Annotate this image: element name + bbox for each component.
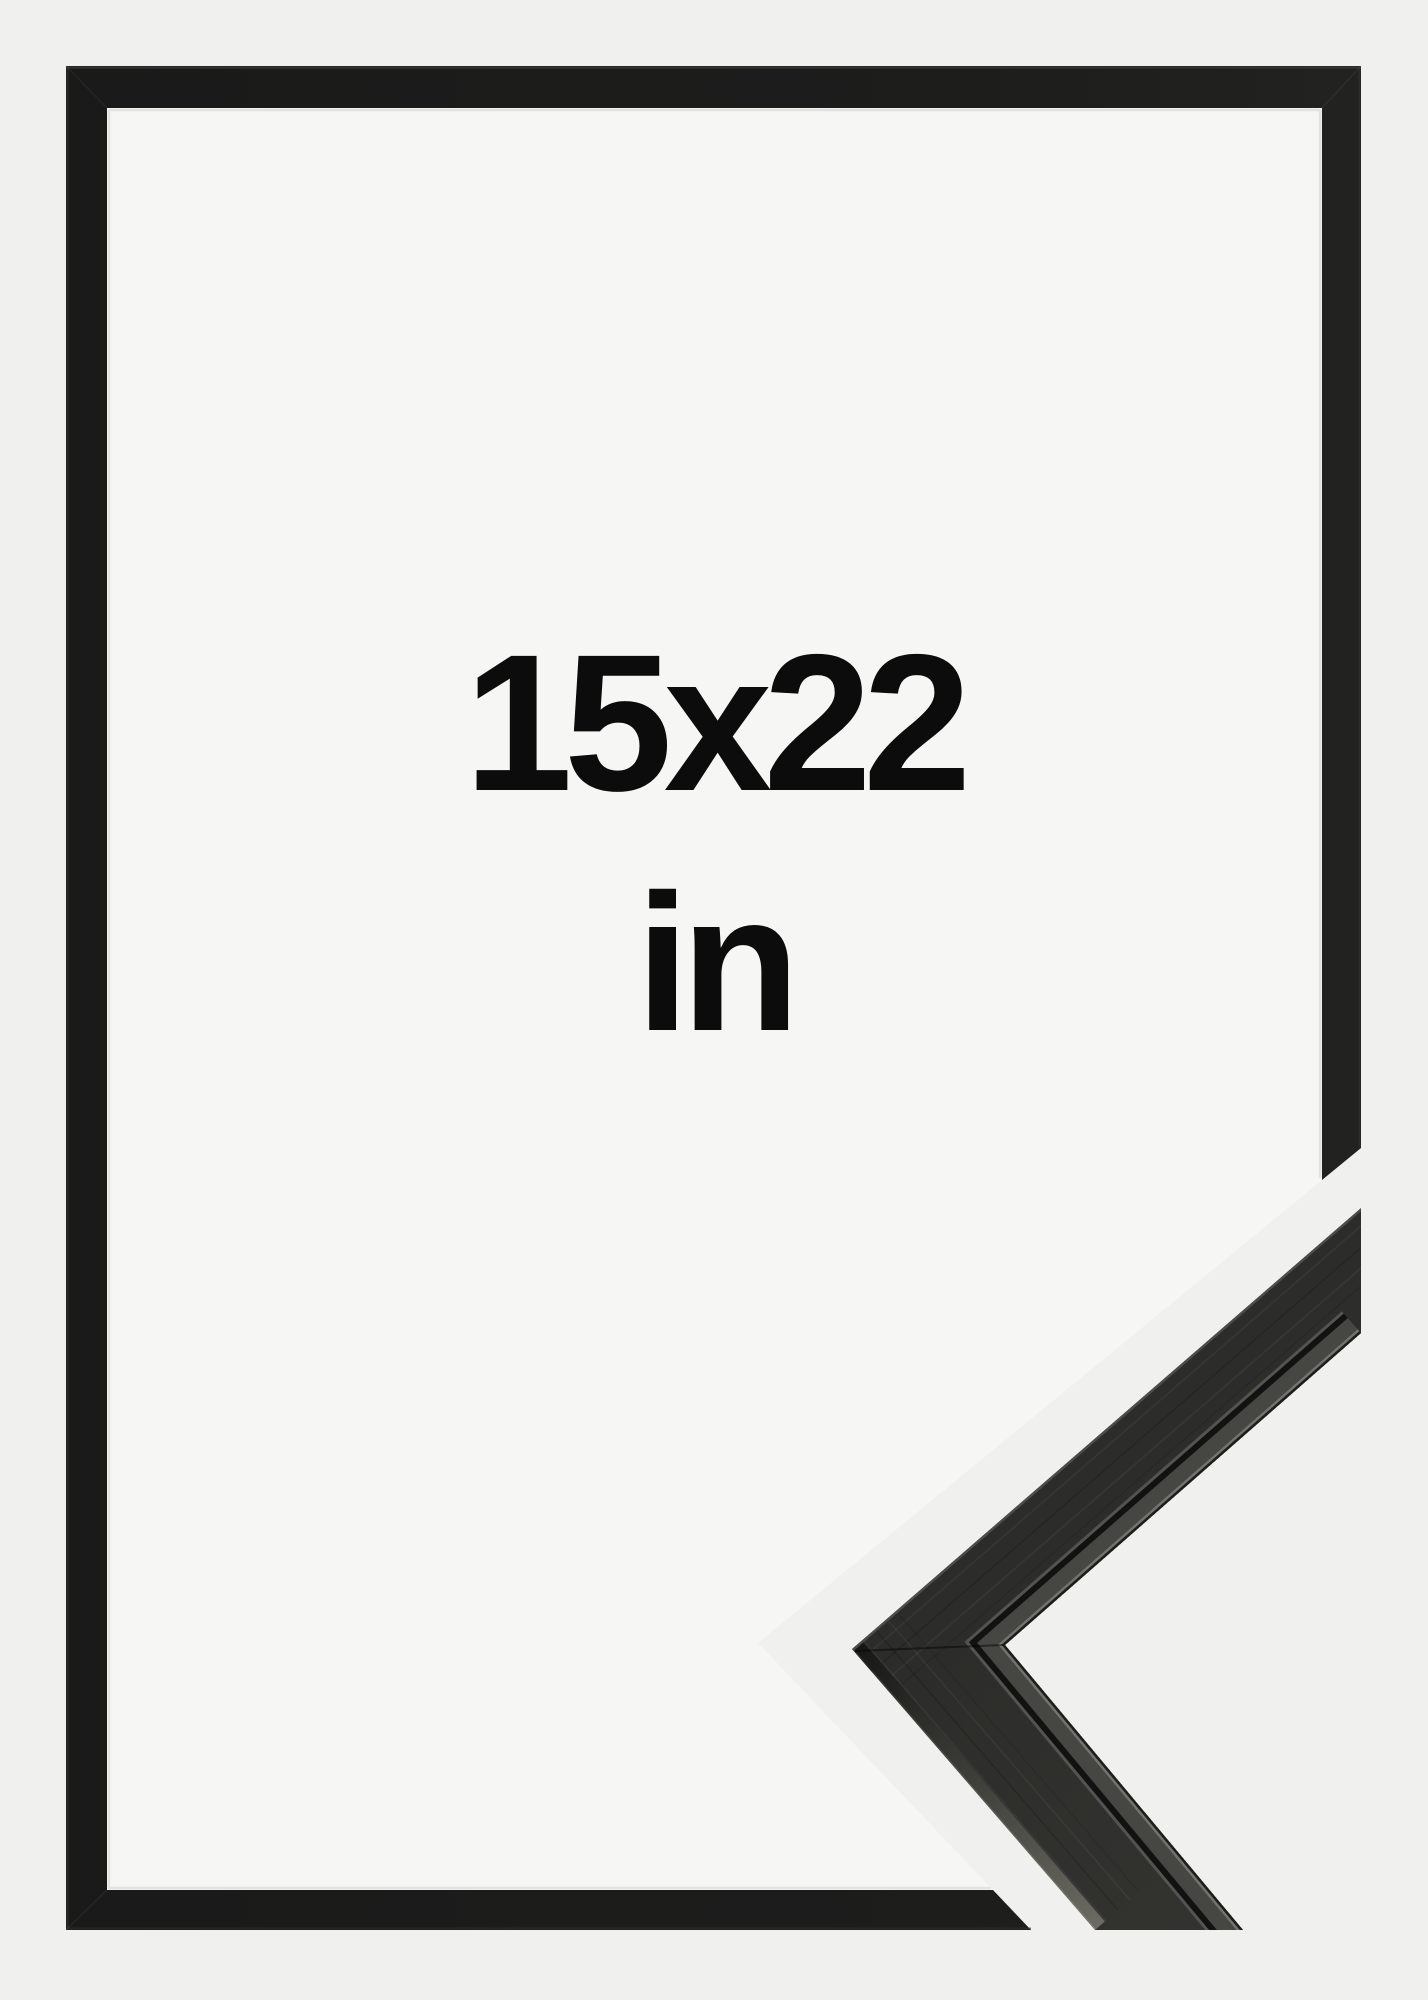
- size-label: 15x22: [0, 603, 1427, 843]
- unit-label: in: [0, 843, 1427, 1083]
- size-caption: 15x22 in: [0, 603, 1427, 1083]
- product-image: 15x22 in: [0, 0, 1428, 2000]
